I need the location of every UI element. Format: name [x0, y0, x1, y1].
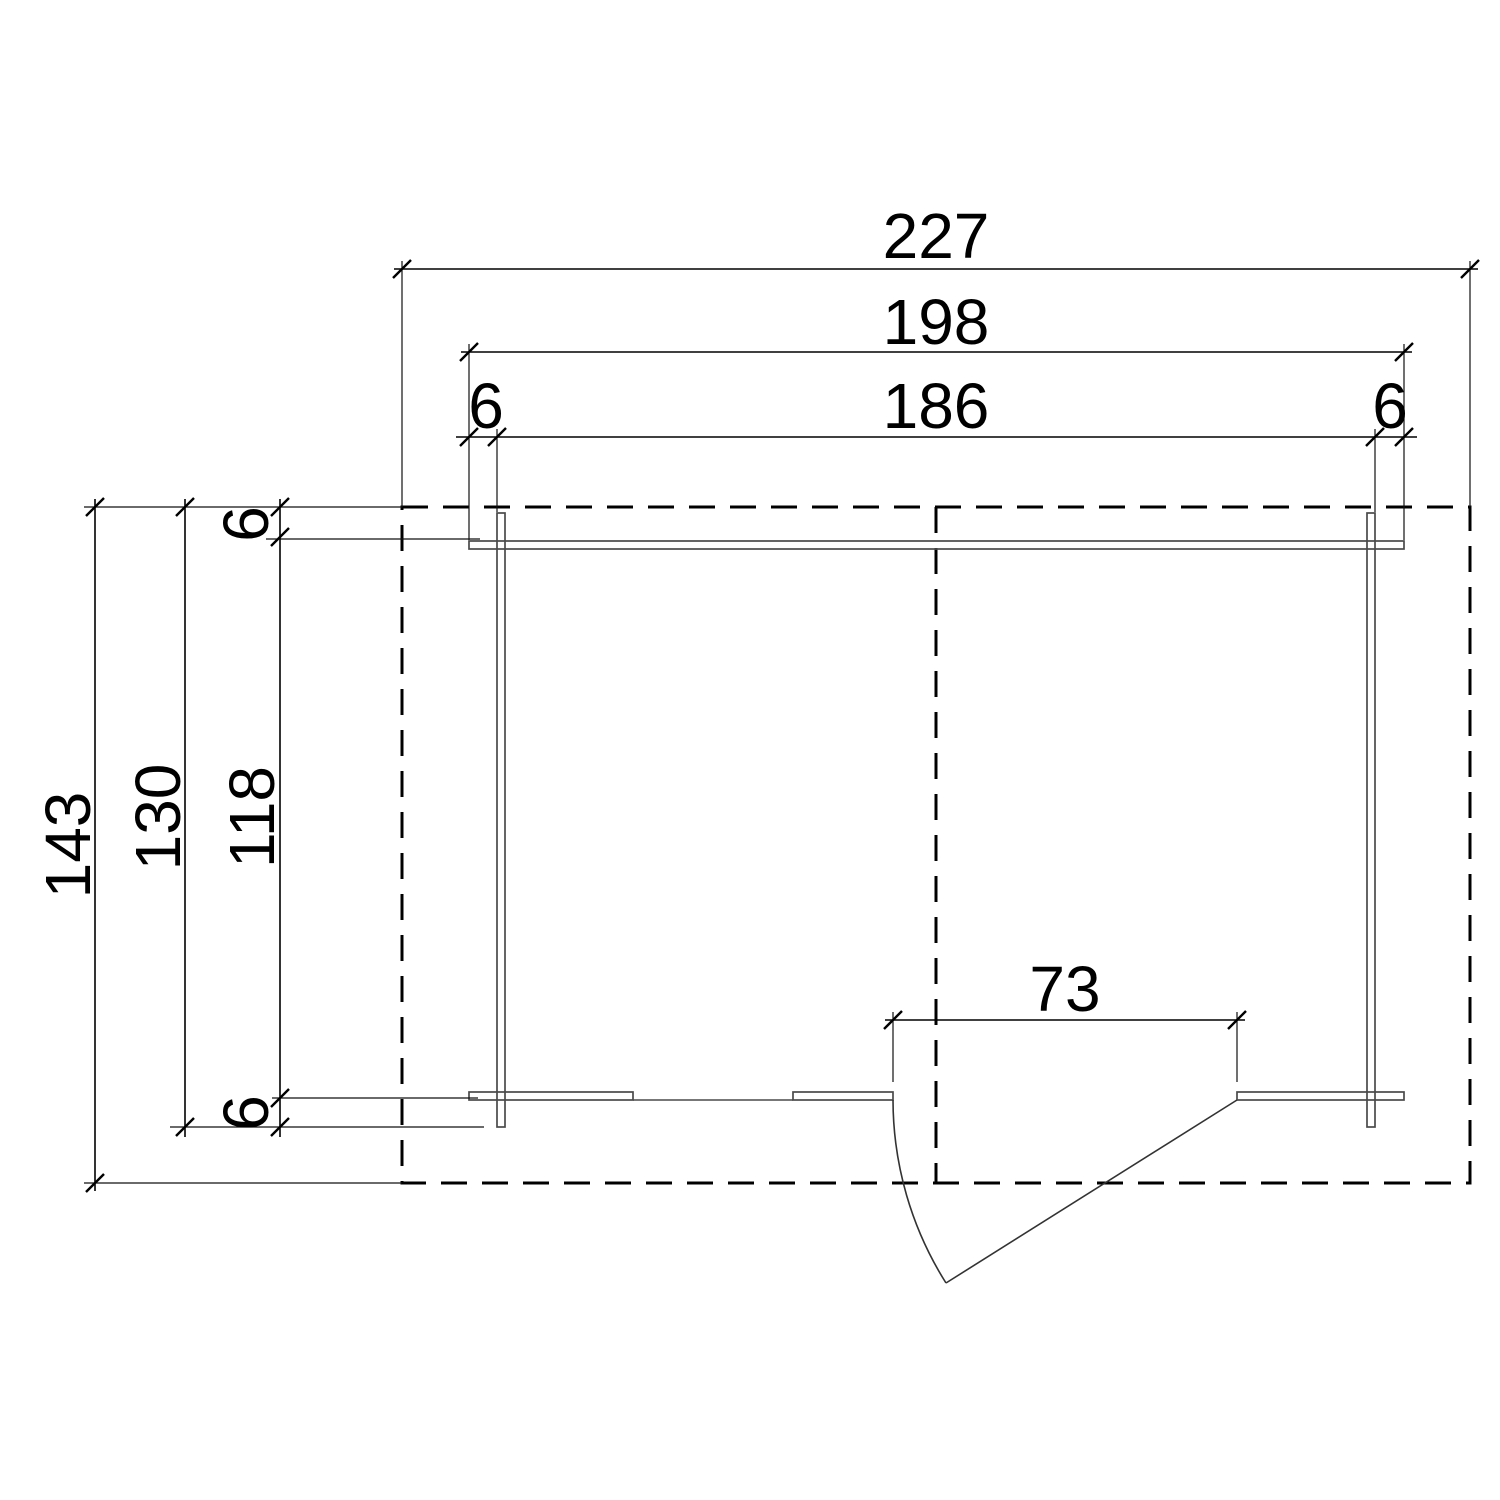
- door-leaf: [946, 1100, 1237, 1283]
- bottom-wall-log-left: [469, 1092, 633, 1100]
- top-wall-log: [469, 541, 1404, 549]
- technical-drawing-page: 227 198 6 186 6 73 143 130: [0, 0, 1500, 1500]
- dim-label-log-end-left: 6: [468, 370, 504, 442]
- dim-label-wall-depth: 118: [216, 766, 288, 868]
- dimension-wall-depth-chain: 6 118 6: [210, 498, 289, 1137]
- dim-label-log-depth: 130: [122, 764, 194, 871]
- dim-label-log-end-right: 6: [1372, 370, 1408, 442]
- dim-label-roof-width: 227: [883, 200, 990, 272]
- dim-label-log-end-top: 6: [210, 506, 282, 542]
- right-wall-log: [1367, 513, 1375, 1127]
- dimension-roof-depth: 143: [32, 498, 104, 1192]
- door-swing-arc: [893, 1100, 946, 1283]
- dim-label-wall-width: 186: [883, 370, 990, 442]
- dim-label-door-width: 73: [1029, 953, 1100, 1025]
- dimension-log-depth: 130: [122, 498, 194, 1137]
- dimension-door-width: 73: [884, 953, 1246, 1029]
- floor-plan-drawing: 227 198 6 186 6 73 143 130: [0, 0, 1500, 1500]
- dim-label-roof-depth: 143: [32, 792, 104, 899]
- bottom-wall-log-right: [1237, 1092, 1404, 1100]
- dim-label-log-end-bottom: 6: [210, 1095, 282, 1131]
- dim-label-log-width: 198: [883, 286, 990, 358]
- dimension-wall-width-chain: 6 186 6: [456, 370, 1417, 446]
- dimension-log-width: 198: [460, 286, 1413, 361]
- dimension-roof-width: 227: [393, 200, 1479, 278]
- extension-lines: [84, 261, 1470, 1183]
- left-wall-log: [497, 513, 505, 1127]
- bottom-wall-log-middle: [793, 1092, 893, 1100]
